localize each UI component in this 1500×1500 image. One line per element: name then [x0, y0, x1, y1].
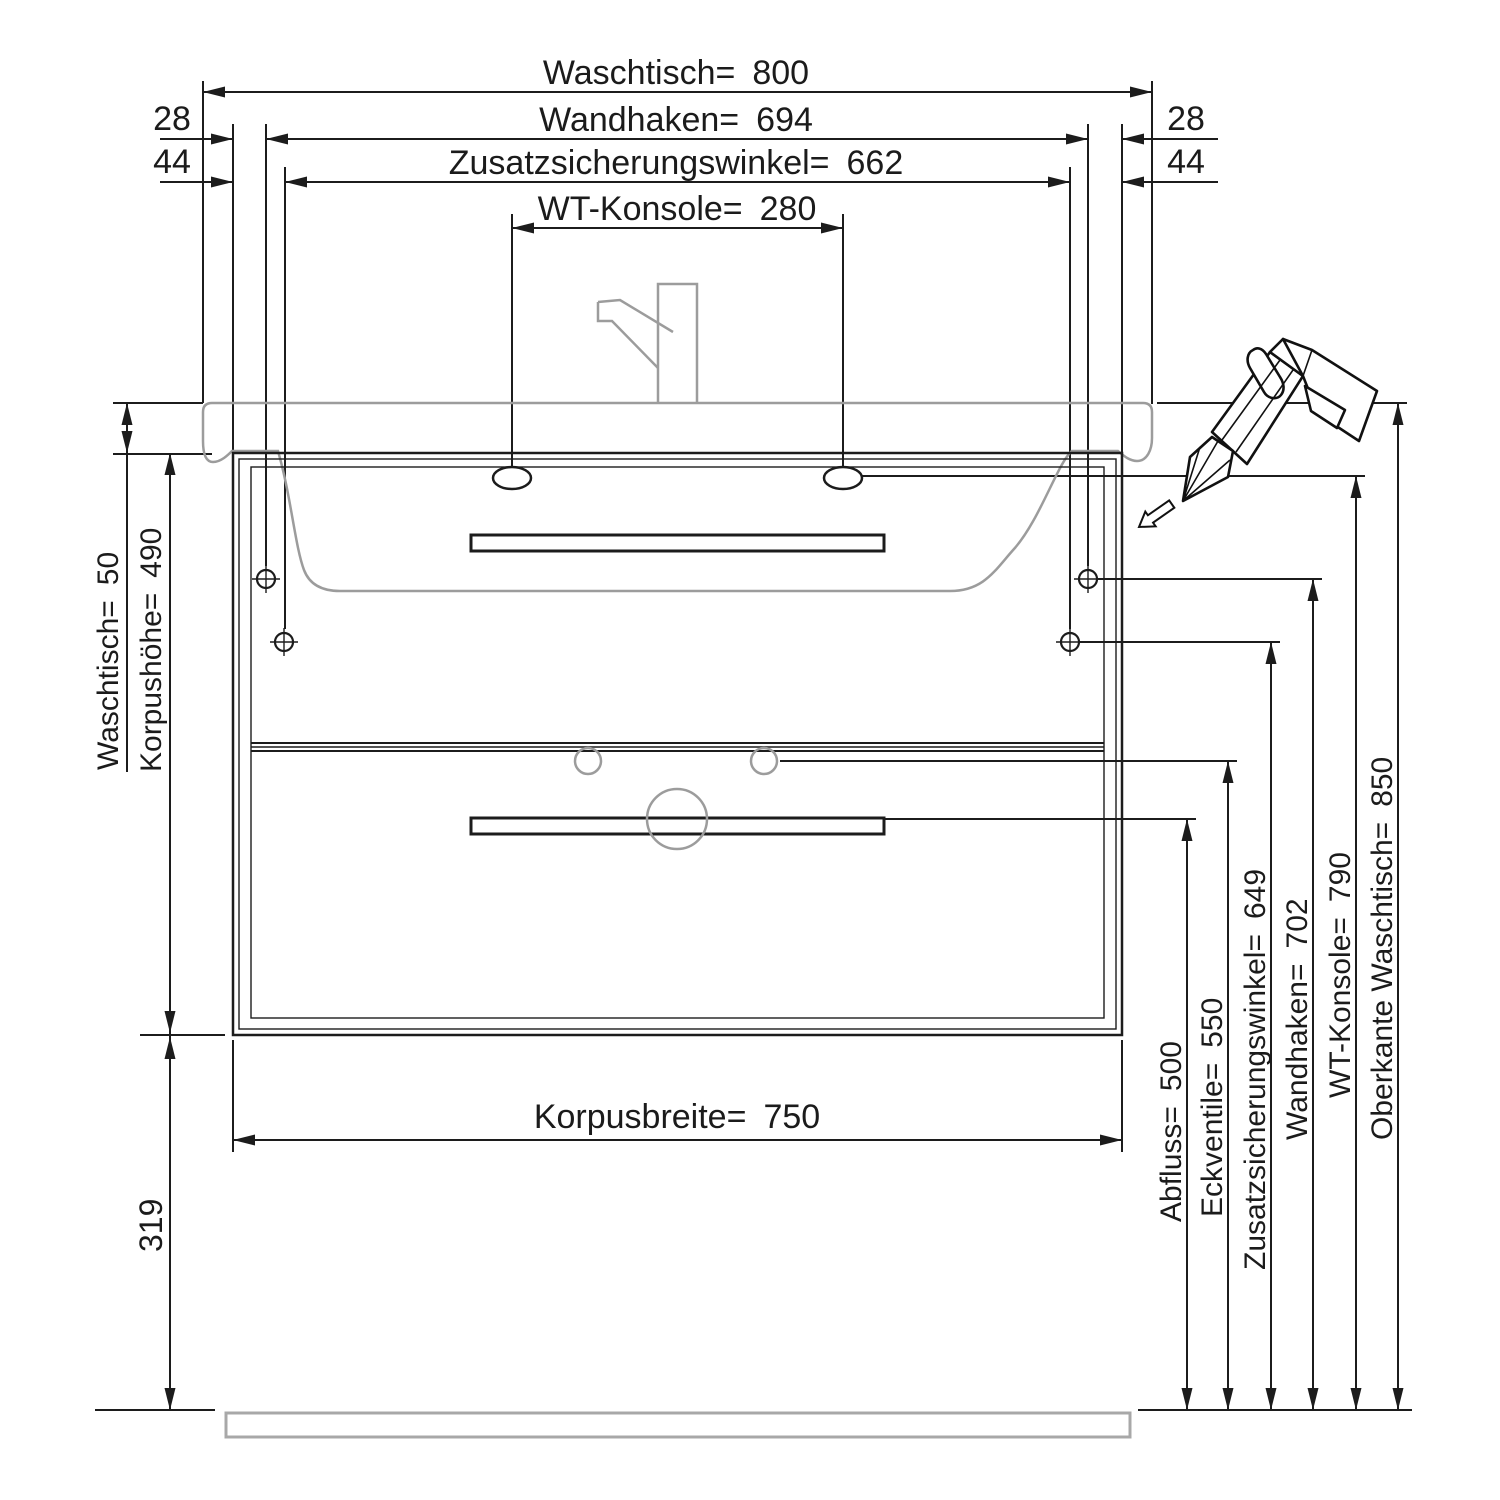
dimension-labels: Waschtisch= 800 28 Wandhaken= 694 28 44 …: [92, 54, 1399, 1270]
label-zusatzwinkel-649: Zusatzsicherungswinkel= 649: [1239, 869, 1272, 1270]
bracket-symbol-right: [1056, 628, 1084, 656]
apply-direction-arrow-icon: [1134, 497, 1177, 535]
faucet-outline: [598, 284, 697, 403]
label-oberkante-850: Oberkante Waschtisch= 850: [1366, 757, 1399, 1140]
basin-body: [203, 403, 1152, 591]
label-waschtisch-800: Waschtisch= 800: [543, 54, 809, 92]
label-28-right: 28: [1167, 100, 1205, 138]
mounting-point-symbols: [252, 565, 1102, 656]
label-44-right: 44: [1167, 143, 1205, 181]
label-319: 319: [133, 1199, 169, 1252]
label-zusatzwinkel-662: Zusatzsicherungswinkel= 662: [449, 144, 904, 182]
label-korpushoehe-490: Korpushöhe= 490: [135, 528, 168, 772]
faucet-spout-bottom: [598, 302, 658, 368]
faucet-body: [658, 284, 697, 403]
label-abfluss-500: Abfluss= 500: [1155, 1041, 1188, 1222]
konsole-slot-right: [824, 467, 862, 489]
technical-drawing-page: Waschtisch= 800 28 Wandhaken= 694 28 44 …: [0, 0, 1500, 1500]
label-wtkonsole-790: WT-Konsole= 790: [1324, 852, 1357, 1098]
bracket-symbol-left: [270, 628, 298, 656]
label-eckventile-550: Eckventile= 550: [1196, 998, 1229, 1217]
wandhaken-symbol-left: [252, 565, 280, 593]
vanity-dimension-diagram: Waschtisch= 800 28 Wandhaken= 694 28 44 …: [0, 0, 1500, 1500]
label-44-left: 44: [153, 143, 191, 181]
gun-nozzle: [1183, 437, 1233, 501]
caulk-gun-icon: [1134, 339, 1377, 534]
label-wtkonsole-280: WT-Konsole= 280: [538, 190, 817, 228]
label-28-left: 28: [153, 100, 191, 138]
drawer-handle-upper: [471, 535, 884, 551]
vanity-cabinet: [233, 453, 1122, 1035]
label-korpusbreite-750: Korpusbreite= 750: [534, 1098, 820, 1136]
drawer-handle-lower: [471, 818, 884, 834]
label-wandhaken-702: Wandhaken= 702: [1281, 898, 1314, 1140]
faucet-spout-top: [598, 300, 673, 332]
wandhaken-symbol-right: [1074, 565, 1102, 593]
label-waschtisch-50: Waschtisch= 50: [92, 552, 125, 770]
label-wandhaken-694: Wandhaken= 694: [539, 101, 813, 139]
floor-plinth: [226, 1413, 1130, 1437]
gun-handle: [1283, 339, 1377, 441]
konsole-slot-left: [493, 467, 531, 489]
washbasin-outline: [203, 403, 1152, 591]
